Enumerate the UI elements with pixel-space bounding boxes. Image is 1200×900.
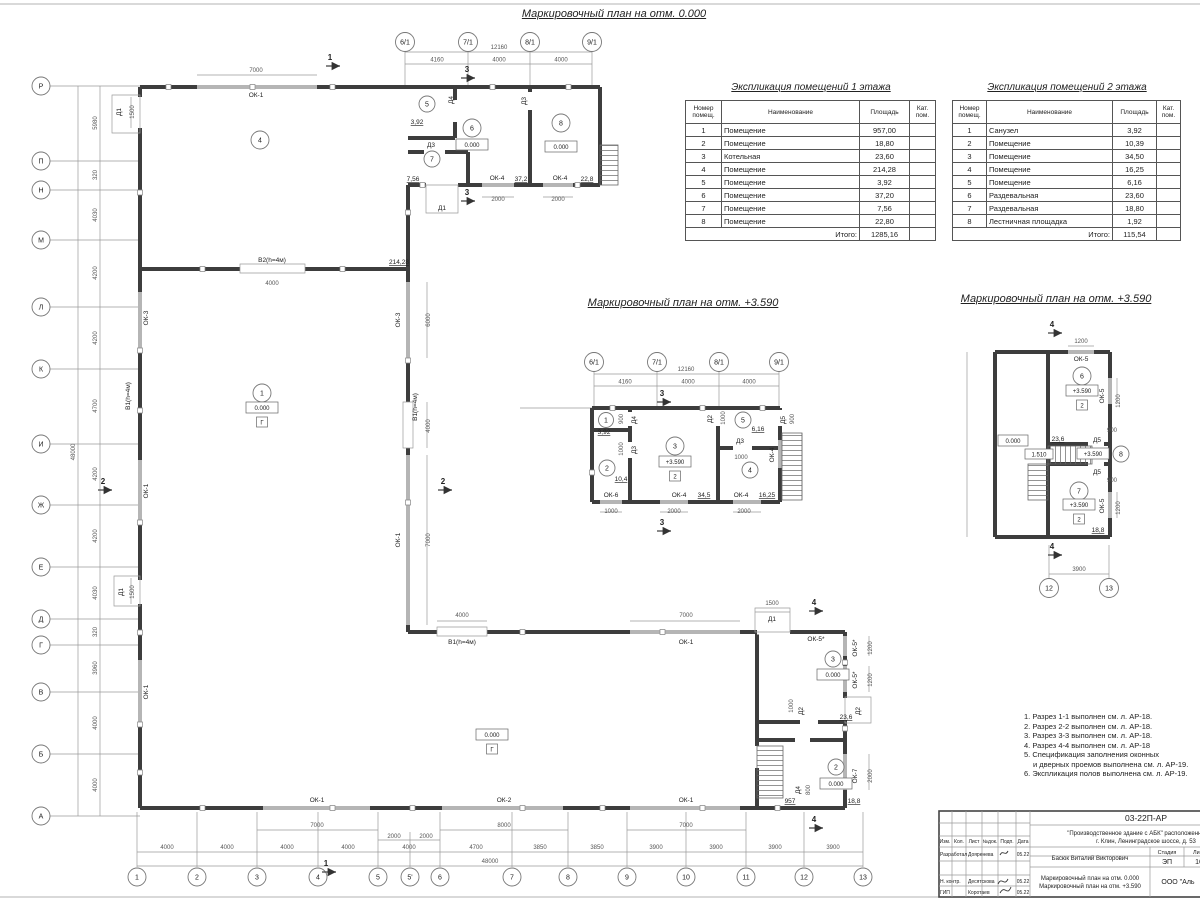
dim-label: 800 <box>806 784 812 795</box>
level-mark: +3.590 <box>1070 503 1089 509</box>
tb-list-num: 16 <box>1195 859 1200 866</box>
window-label: ОК-1 <box>249 92 264 99</box>
table-row: 4Помещение16,25 <box>953 163 1181 176</box>
table-row: 3Помещение34,50 <box>953 150 1181 163</box>
grid-label: 10 <box>682 875 690 882</box>
grid-bottom: 1 2 3 4 5 5' 6 7 8 9 10 11 12 13 <box>128 868 872 886</box>
tb-col: №док. <box>983 839 998 845</box>
dim-label: 2000 <box>387 834 401 840</box>
dim-label: 4000 <box>426 419 432 433</box>
area-label: 22,8 <box>581 176 594 183</box>
gate-label: В1(h=4м) <box>448 639 476 646</box>
section-mark: 4 <box>812 598 817 607</box>
section-mark: 4 <box>1050 542 1055 551</box>
dim-label: 1200 <box>1116 394 1122 408</box>
dim-total: 12160 <box>491 45 508 51</box>
cell: 10,39 <box>1113 137 1157 150</box>
col-header: Номер помещ. <box>953 101 987 124</box>
cell: 23,60 <box>1113 189 1157 202</box>
note-line: и дверных проемов выполнена см. л. АР-19… <box>1024 760 1188 770</box>
tb-col: Изм. <box>940 839 951 845</box>
cell: 37,20 <box>860 189 910 202</box>
tb-company: ООО "Аль <box>1161 879 1195 886</box>
dim-label: 1200 <box>868 673 874 687</box>
dim-label: 1500 <box>130 105 136 119</box>
col-header: Площадь <box>1113 101 1157 124</box>
stairs-annex <box>600 145 618 185</box>
dim-label: 3850 <box>590 845 604 851</box>
tb-col: Лист <box>969 839 981 845</box>
room-number: 3 <box>831 657 835 664</box>
window-label: ОК-3 <box>143 310 150 325</box>
grid-label: 13 <box>1105 586 1113 593</box>
cell: Помещение <box>987 176 1113 189</box>
area-label: 18,8 <box>1092 527 1105 534</box>
cell: Помещение <box>987 150 1113 163</box>
dim-label: 900 <box>1107 478 1118 484</box>
door-label: Д3 <box>736 438 744 445</box>
grid-label: 5' <box>407 875 412 882</box>
cell: Раздевальная <box>987 202 1113 215</box>
grid-label: 9/1 <box>774 360 784 367</box>
level-mark: +3.590 <box>1084 452 1103 458</box>
door-label: Д4 <box>448 96 455 104</box>
cell <box>910 189 936 202</box>
table-row: 1Помещение957,00 <box>686 124 936 137</box>
stairs-lower <box>1028 464 1048 500</box>
cell: Лестничная площадка <box>987 215 1113 228</box>
cell: 3,92 <box>1113 124 1157 137</box>
table-total-row: Итого:115,54 <box>953 228 1181 241</box>
cell: 2 <box>686 137 722 150</box>
cell <box>1157 137 1181 150</box>
window-label: ОК-4 <box>490 175 505 182</box>
section-mark: 1 <box>324 859 329 868</box>
col-header: Кат. пом. <box>1157 101 1181 124</box>
table-floor1-title: Экспликация помещений 1 этажа <box>685 82 937 93</box>
tb-role: Н. контр. <box>940 879 961 885</box>
grid-label: 8/1 <box>525 40 535 47</box>
grid-label: Н <box>38 188 43 195</box>
table-floor2-title: Экспликация помещений 2 этажа <box>952 82 1182 93</box>
dim-label: 1000 <box>789 699 795 713</box>
cell: 3 <box>686 150 722 163</box>
area-label: 214,28 <box>389 259 409 266</box>
dim-label: 1200 <box>1116 501 1122 515</box>
plan-main-title: Маркировочный план на отм. 0.000 <box>522 8 706 20</box>
grid-label: 9 <box>625 875 629 882</box>
cell: Помещение <box>722 137 860 150</box>
dim-label: 2000 <box>737 509 751 515</box>
door-label: Д1 <box>118 588 125 596</box>
dim-label: 4000 <box>492 58 506 64</box>
cell: Помещение <box>722 124 860 137</box>
window-label: ОК-1 <box>679 797 694 804</box>
dim-label: 4000 <box>220 845 234 851</box>
table-total-row: Итого:1285,16 <box>686 228 936 241</box>
grid-label: 6 <box>438 875 442 882</box>
cell: Помещение <box>987 163 1113 176</box>
total-value: 1285,16 <box>860 228 910 241</box>
window-label: ОК-5* <box>852 639 859 657</box>
labels: ОК-6 1000 ОК-4 34,5 2000 ОК-4 16,25 2000… <box>604 411 796 515</box>
table-row: 2Помещение10,39 <box>953 137 1181 150</box>
window-label: ОК-2 <box>497 797 512 804</box>
cell: Помещение <box>722 176 860 189</box>
gate-label: В1(h=4м) <box>125 382 132 410</box>
grid-label: 1 <box>135 875 139 882</box>
cell: 214,28 <box>860 163 910 176</box>
window-label: ОК-7 <box>852 768 859 783</box>
dim-label: 3900 <box>709 845 723 851</box>
door-label: Д3 <box>521 97 528 105</box>
cell: 6 <box>953 189 987 202</box>
dim-label: 3900 <box>826 845 840 851</box>
section-mark: 3 <box>660 518 665 527</box>
section-mark: 2 <box>101 477 106 486</box>
cell <box>910 202 936 215</box>
grid-label: Р <box>39 84 44 91</box>
window-label: ОК-5 <box>1074 356 1089 363</box>
stairs-wing <box>757 746 783 798</box>
cell <box>910 163 936 176</box>
level-mark: 0.000 <box>1005 439 1021 445</box>
cell: 16,25 <box>1113 163 1157 176</box>
cell <box>910 215 936 228</box>
dim-label: 2000 <box>491 197 505 203</box>
grid-label: 8/1 <box>714 360 724 367</box>
room-number: 7 <box>430 157 434 164</box>
door-label: Д3 <box>631 446 638 454</box>
note-line: 4. Разрез 4-4 выполнен см. л. АР-18 <box>1024 741 1188 751</box>
grid-label: 4 <box>316 875 320 882</box>
area-label: 3,92 <box>411 119 424 126</box>
cell: 3,92 <box>860 176 910 189</box>
table-floor1: Экспликация помещений 1 этажа Номер поме… <box>685 82 937 241</box>
dim-label: 4000 <box>455 613 469 619</box>
dim-label: 7000 <box>679 823 693 829</box>
grid-label: Ж <box>38 503 45 510</box>
cell <box>910 228 936 241</box>
door-label: Д5 <box>780 416 787 424</box>
tb-role: ГИП <box>940 890 950 896</box>
dim-label: 8000 <box>497 823 511 829</box>
dim-label: 4030 <box>93 586 99 600</box>
grid-label: М <box>38 238 44 245</box>
section-mark: 3 <box>660 389 665 398</box>
cell: 3 <box>953 150 987 163</box>
dim-label: 900 <box>1107 428 1118 434</box>
door-label: Д3 <box>427 142 435 149</box>
grid-label: И <box>38 442 43 449</box>
cell: 4 <box>686 163 722 176</box>
dim-label: 1000 <box>721 411 727 425</box>
window-label: ОК-4 <box>734 492 749 499</box>
area-label: 23,6 <box>1052 436 1065 443</box>
room-number: 3 <box>673 444 677 451</box>
dim-label: 7000 <box>249 68 263 74</box>
grid-label: 8 <box>566 875 570 882</box>
table-row: 5Помещение6,16 <box>953 176 1181 189</box>
grid-label: 11 <box>742 875 749 882</box>
dim-label: 900 <box>790 413 796 424</box>
area-label: 34,5 <box>698 492 711 499</box>
tb-project-1: "Производственное здание с АБК" располож… <box>1067 831 1200 837</box>
dim-label: 4200 <box>93 467 99 481</box>
dim-label: 1500 <box>130 585 136 599</box>
stairs <box>782 433 802 500</box>
col-header: Номер помещ. <box>686 101 722 124</box>
cell: 1 <box>953 124 987 137</box>
dim-label: 2000 <box>868 769 874 783</box>
dim-label: 320 <box>93 626 99 637</box>
grid-label: 2 <box>195 875 199 882</box>
area-label: 957 <box>785 798 796 805</box>
grid-label: 12 <box>1045 586 1053 593</box>
tb-stage: ЭП <box>1162 859 1172 866</box>
dim-label: 4000 <box>681 380 695 386</box>
tb-date: 05.22 <box>1017 852 1030 858</box>
drawing-sheet: Р П Н М Л К И Ж Е Д Г В Б А 5980 320 403… <box>0 0 1200 900</box>
dim-label: 1000 <box>619 442 625 456</box>
cell: 5 <box>953 176 987 189</box>
grid-top: 6/1 7/1 8/1 9/1 12160 4160 4000 4000 <box>585 353 789 386</box>
notes-list: 1. Разрез 1-1 выполнен см. л. АР-18. 2. … <box>1024 712 1188 779</box>
table-row: 1Санузел3,92 <box>953 124 1181 137</box>
cell: Помещение <box>722 189 860 202</box>
door-label: Д4 <box>631 416 638 424</box>
dim-label: 4030 <box>93 208 99 222</box>
window-label: ОК-4 <box>769 447 776 462</box>
table-row: 6Раздевальная23,60 <box>953 189 1181 202</box>
area-label: 10,4 <box>615 476 628 483</box>
cell: 7 <box>953 202 987 215</box>
cell: 6 <box>686 189 722 202</box>
gate-label: В1(h=4м) <box>412 393 419 421</box>
grid-label: В <box>39 690 44 697</box>
window-label: ОК-1 <box>679 639 694 646</box>
grid-label: 7/1 <box>463 40 473 47</box>
grid-label: 13 <box>859 875 867 882</box>
grid-label: Б <box>39 752 44 759</box>
area-label: 16,25 <box>759 492 776 499</box>
dim-total: 48000 <box>71 443 77 460</box>
grid-label: А <box>39 814 44 821</box>
col-header: Наименование <box>722 101 860 124</box>
dim-label: 4000 <box>280 845 294 851</box>
grid-label: 9/1 <box>587 40 597 47</box>
total-value: 115,54 <box>1113 228 1157 241</box>
dim-label: 1200 <box>1074 339 1088 345</box>
level-mark: 0.000 <box>464 143 480 149</box>
grid-label: 6/1 <box>400 40 410 47</box>
window-label: ОК-1 <box>143 483 150 498</box>
tb-col: Подп. <box>1000 839 1013 845</box>
cell: 8 <box>686 215 722 228</box>
dim-label: 3960 <box>93 661 99 675</box>
dim-label: 2000 <box>551 197 565 203</box>
window-label: ОК-5 <box>1099 498 1106 513</box>
cell: 957,00 <box>860 124 910 137</box>
cell <box>1157 150 1181 163</box>
dim-label: 4200 <box>93 529 99 543</box>
room-number: 8 <box>1119 452 1123 459</box>
dim-label: 1000 <box>604 509 618 515</box>
table-row: 8Помещение22,80 <box>686 215 936 228</box>
tb-date: 05.22 <box>1017 890 1030 896</box>
plan-mid-title: Маркировочный план на отм. +3.590 <box>588 297 779 309</box>
dim-label: 4200 <box>93 331 99 345</box>
dim-label: 4700 <box>469 845 483 851</box>
room-number: 4 <box>748 468 752 475</box>
area-label: 18,8 <box>848 798 861 805</box>
window-label: ОК-1 <box>395 532 402 547</box>
level-mark: 0.000 <box>484 733 500 739</box>
cell <box>910 124 936 137</box>
door-label: Д1 <box>768 616 776 623</box>
table-row: 4Помещение214,28 <box>686 163 936 176</box>
cell: 18,80 <box>1113 202 1157 215</box>
note-line: 2. Разрез 2-2 выполнен см. л. АР-18. <box>1024 722 1188 732</box>
table-row: 2Помещение18,80 <box>686 137 936 150</box>
note-line: 3. Разрез 3-3 выполнен см. л. АР-18. <box>1024 731 1188 741</box>
dim-label: 6000 <box>426 313 432 327</box>
door-label: Д2 <box>798 707 805 715</box>
dims-left: 5980 320 4030 4200 4200 4700 4200 4200 4… <box>71 116 99 792</box>
cell <box>1157 176 1181 189</box>
window-label: ОК-5* <box>807 636 825 643</box>
cell: 34,50 <box>1113 150 1157 163</box>
cell: Раздевальная <box>987 189 1113 202</box>
grid-left: Р П Н М Л К И Ж Е Д Г В Б А <box>32 77 50 825</box>
door-label: Д4 <box>795 786 802 794</box>
grid-label: Д <box>39 617 44 624</box>
dim-label: 4000 <box>93 716 99 730</box>
area-label: 7,56 <box>407 176 420 183</box>
title-block: Изм. Кол. Лист №док. Подп. Дата Разработ… <box>938 810 1200 898</box>
cell <box>1157 215 1181 228</box>
cell: Помещение <box>722 215 860 228</box>
room-number: 1 <box>260 391 264 398</box>
tb-project-2: г. Клин, Ленинградское шоссе, д. 53 <box>1096 839 1196 845</box>
tb-date: 05.22 <box>1017 879 1030 885</box>
grid-label: 3 <box>255 875 259 882</box>
section-mark: 4 <box>812 815 817 824</box>
dim-label: 3900 <box>649 845 663 851</box>
dim-total: 48000 <box>482 859 499 865</box>
tb-name: Десятскова <box>968 879 995 885</box>
dim-label: 1200 <box>868 641 874 655</box>
cell: 1,92 <box>1113 215 1157 228</box>
window-label: ОК-1 <box>143 684 150 699</box>
col-header: Наименование <box>987 101 1113 124</box>
cell: 1 <box>686 124 722 137</box>
cell: 6,16 <box>1113 176 1157 189</box>
section-mark: 2 <box>441 477 446 486</box>
tb-sheet-2: Маркировочный план на отм. +3.590 <box>1039 883 1141 890</box>
cell <box>910 150 936 163</box>
room-number: 6 <box>470 126 474 133</box>
door-label: Д2 <box>855 707 862 715</box>
room-number: 8 <box>559 121 563 128</box>
area-label: 6,16 <box>752 426 765 433</box>
cell: 23,60 <box>860 150 910 163</box>
dim-label: 4000 <box>93 778 99 792</box>
room-number: 2 <box>834 765 838 772</box>
room-number: 7 <box>1077 489 1081 496</box>
room-number: 2 <box>605 466 609 473</box>
cell: 7,56 <box>860 202 910 215</box>
grid-top: 6/1 7/1 8/1 9/1 12160 4160 4000 4000 <box>396 33 602 64</box>
dim-label: 4000 <box>402 845 416 851</box>
level-mark: +3.590 <box>666 460 685 466</box>
dim-label: 1000 <box>734 455 748 461</box>
room-number: 6 <box>1080 374 1084 381</box>
table-row: 6Помещение37,20 <box>686 189 936 202</box>
dim-label: 7000 <box>426 533 432 547</box>
section-mark: 1 <box>328 53 333 62</box>
dim-label: 3900 <box>768 845 782 851</box>
tb-name: Дояренева <box>968 852 994 858</box>
table-row: 7Раздевальная18,80 <box>953 202 1181 215</box>
level-mark: 1.510 <box>1031 453 1047 459</box>
tb-col: Кол. <box>954 839 964 845</box>
cell: 18,80 <box>860 137 910 150</box>
grid-label: 5 <box>376 875 380 882</box>
grid-label: 12 <box>800 875 808 882</box>
cell: 5 <box>686 176 722 189</box>
dim-label: 2000 <box>419 834 433 840</box>
cell: Помещение <box>722 202 860 215</box>
level-mark: 0.000 <box>553 145 569 151</box>
tb-sheet-1: Маркировочный план на отм. 0.000 <box>1041 875 1140 882</box>
level-mark: 0.000 <box>825 673 841 679</box>
note-line: 6. Экспликация полов выполнена см. л. АР… <box>1024 769 1188 779</box>
door-label: Д5 <box>1093 469 1101 476</box>
plan-mid: 6/1 7/1 8/1 9/1 12160 4160 4000 4000 ОК-… <box>520 353 802 532</box>
dim-label: 4160 <box>430 58 444 64</box>
dim-label: 7000 <box>679 613 693 619</box>
dim-label: 4000 <box>160 845 174 851</box>
tb-role: Разработал <box>940 852 967 858</box>
level-mark: 0.000 <box>828 782 844 788</box>
dim-label: 4000 <box>742 380 756 386</box>
dims-bottom: 4000 4000 4000 4000 4000 4700 3850 3850 … <box>160 834 840 865</box>
dim-label: 900 <box>619 413 625 424</box>
window-label: ОК-6 <box>604 492 619 499</box>
cell <box>1157 124 1181 137</box>
total-label: Итого: <box>686 228 860 241</box>
cell: 2 <box>953 137 987 150</box>
table-row: 3Котельная23,60 <box>686 150 936 163</box>
area-label: 37,2 <box>515 176 528 183</box>
table-row: 7Помещение7,56 <box>686 202 936 215</box>
grid-label: П <box>38 159 43 166</box>
tb-author: Басюк Виталий Викторович <box>1052 855 1129 862</box>
plan-right: 1200 ОК-5 ОК-5 1200 ОК-5 1200 Д5 900 Д5 … <box>967 320 1129 598</box>
section-mark: 4 <box>1050 320 1055 329</box>
dim-label: 4160 <box>618 380 632 386</box>
dim-label: 4000 <box>554 58 568 64</box>
dim-label: 4000 <box>265 281 279 287</box>
section-mark: 3 <box>465 65 470 74</box>
dim-total: 12160 <box>678 367 695 373</box>
area-label: 3,92 <box>598 429 611 436</box>
cell: 22,80 <box>860 215 910 228</box>
door-label: Д1 <box>438 205 446 212</box>
cell <box>1157 163 1181 176</box>
cell <box>910 176 936 189</box>
